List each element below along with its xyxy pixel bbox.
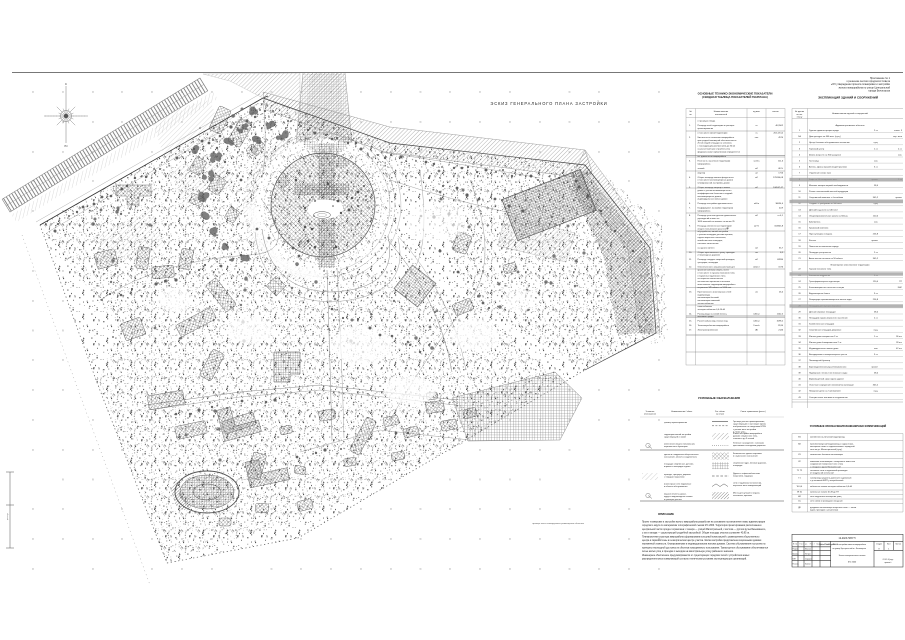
svg-text:существующей и новой: существующей и новой — [664, 436, 686, 439]
svg-text:га 4,1: га 4,1 — [778, 215, 784, 217]
svg-text:Общая площадь жилого фонда все: Общая площадь жилого фонда всего — [698, 176, 735, 179]
svg-text:Ю: Ю — [64, 144, 67, 148]
svg-text:Фонтан: Фонтан — [809, 239, 816, 242]
svg-text:коэффициентов балконов и лоджи: коэффициентов балконов и лоджий — [698, 192, 734, 195]
svg-text:кВт: кВт — [755, 330, 758, 332]
svg-text:Козлов: Козлов — [805, 564, 811, 566]
svg-text:М 1:2000: М 1:2000 — [848, 562, 857, 564]
svg-text:гостевых автостоянок: гостевых автостоянок — [698, 243, 719, 245]
svg-text:48 %: 48 % — [778, 168, 783, 170]
svg-text:25 м2 общей площади на человек: 25 м2 общей площади на человека — [698, 142, 733, 145]
svg-text:111,6: 111,6 — [778, 160, 784, 162]
svg-text:граница зоны планируемого разм: граница зоны планируемого размещения объ… — [532, 523, 585, 525]
svg-text:сущ.: сущ. — [874, 330, 879, 332]
svg-text:проект: проект — [896, 197, 903, 199]
svg-text:газоснабжения: газоснабжения — [698, 306, 712, 308]
svg-text:Административные объекты: Административные объекты — [836, 124, 865, 127]
svg-text:3 эт.: 3 эт. — [874, 167, 878, 169]
svg-text:индивидуальных жилых домов: индивидуальных жилых домов — [698, 199, 729, 201]
svg-text:в том числе: в гаражах боксово: в том числе: в гаражах боксового типа — [698, 272, 736, 274]
svg-text:Н.контр.: Н.контр. — [793, 564, 800, 566]
svg-text:345,2: 345,2 — [873, 385, 879, 387]
svg-text:Жилые дома блокированные 2 эт.: Жилые дома блокированные 2 эт. — [809, 342, 842, 344]
svg-text:Расчетный расход сточных вод: Расчетный расход сточных вод — [698, 320, 729, 323]
svg-text:при средней жилищной обеспечен: при средней жилищной обеспеченности — [698, 139, 738, 142]
svg-text:Площадь участков детских дошко: Площадь участков детских дошкольных — [698, 215, 738, 217]
svg-text:1142,5: 1142,5 — [777, 313, 784, 315]
svg-text:показателей: показателей — [715, 113, 728, 116]
svg-text:Листов: Листов — [895, 544, 901, 546]
svg-text:тротуаров, площадок: тротуаров, площадок — [698, 262, 719, 264]
svg-text:федеральными нормативами опред: федеральными нормативами определяется — [698, 150, 740, 153]
svg-text:Школа искусств на 350 учащихся: Школа искусств на 350 учащихся — [809, 154, 841, 156]
svg-text:нов.: нов. — [898, 154, 902, 156]
svg-text:водные объекты, ручьи,: водные объекты, ручьи, — [664, 494, 687, 496]
svg-text:2 эт.: 2 эт. — [874, 318, 878, 320]
svg-text:Велодорожки и лыжероллерная тр: Велодорожки и лыжероллерная трасса — [809, 354, 848, 356]
svg-text:проект: проект — [872, 366, 879, 368]
svg-text:Разраб.: Разраб. — [793, 549, 800, 551]
svg-text:Пожарное депо на 2 автомобиля: Пожарное депо на 2 автомобиля — [809, 391, 841, 393]
svg-text:домах с учетом понижающих конс: домах с учетом понижающих конст. — [698, 190, 733, 192]
svg-text:Общая протяженность улиц, прое: Общая протяженность улиц, проездов — [698, 252, 736, 254]
svg-text:кол-во: кол-во — [772, 111, 779, 113]
svg-text:Спортивный комплекс с бассейно: Спортивный комплекс с бассейном — [809, 196, 844, 199]
svg-text:площадки: площадки — [733, 465, 742, 467]
svg-text:сети по ул. Магистральной (сущ: сети по ул. Магистральной (сущ.) — [810, 448, 843, 451]
svg-text:Детские игровые площадки: Детские игровые площадки — [809, 311, 836, 313]
svg-text:кольцевая схема с подключением: кольцевая схема с подключением к городск… — [810, 445, 855, 448]
svg-text:электроснабжения 0,4-10 кВ: электроснабжения 0,4-10 кВ — [698, 309, 726, 311]
svg-text:площадки спортивные, детские,: площадки спортивные, детские, — [664, 464, 694, 466]
svg-text:озеленение общего пользования,: озеленение общего пользования, — [664, 444, 696, 446]
svg-text:W 0,4: W 0,4 — [797, 486, 803, 488]
svg-text:ОПИСАНИЕ: ОПИСАНИЕ — [658, 512, 674, 516]
svg-text:цветниками и посадками деревье: цветниками и посадками деревьев — [733, 445, 765, 447]
svg-text:проект»: проект» — [885, 562, 892, 564]
svg-text:36094,4: 36094,4 — [775, 203, 783, 205]
svg-text:120,4: 120,4 — [873, 215, 879, 217]
svg-text:№ здания: № здания — [795, 110, 804, 113]
svg-text:Лист: Лист — [887, 544, 891, 546]
svg-text:ливневая канализация с выпуско: ливневая канализация с выпуском в очистн… — [810, 461, 856, 463]
svg-text:Коэффициент застройки территор: Коэффициент застройки территории — [698, 207, 734, 210]
svg-text:м/мест: м/мест — [753, 267, 760, 269]
svg-text:шт: шт — [755, 172, 758, 174]
svg-text:на плане: на плане — [716, 414, 725, 416]
svg-text:ООО «Град-: ООО «Град- — [883, 559, 894, 561]
svg-text:12-2023-ПЗУ.ГП: 12-2023-ПЗУ.ГП — [839, 538, 856, 540]
svg-text:вдоль проездов с решетками: вдоль проездов с решетками — [810, 510, 839, 512]
svg-text:газопровод среднего давления н: газопровод среднего давления надземный — [810, 477, 852, 480]
svg-text:Жилая застройка микрорайона: Жилая застройка микрорайона — [733, 432, 763, 435]
svg-text:НО: НО — [798, 496, 802, 498]
svg-text:ЭСКИЗ ГЕНЕРАЛЬНОГО ПЛАНА ЗАСТР: ЭСКИЗ ГЕНЕРАЛЬНОГО ПЛАНА ЗАСТРОЙКИ — [490, 101, 607, 106]
svg-text:Канализационная насосная станц: Канализационная насосная станция — [809, 287, 844, 289]
svg-text:Гкал/ч: Гкал/ч — [753, 325, 759, 327]
svg-text:в паркингах подземного типа: в паркингах подземного типа — [698, 275, 727, 277]
svg-text:1 эт.: 1 эт. — [874, 148, 878, 150]
svg-text:14.: 14. — [689, 313, 692, 315]
svg-text:Индивидуальные жилые дома: Индивидуальные жилые дома — [809, 348, 839, 350]
svg-text:хозяйственно-питьевой водопров: хозяйственно-питьевой водопровод — [810, 436, 845, 439]
svg-text:163345,8: 163345,8 — [774, 225, 784, 227]
svg-text:345,2: 345,2 — [873, 258, 879, 260]
svg-text:3 эт.: 3 эт. — [874, 293, 878, 295]
svg-text:м2/га: м2/га — [754, 203, 760, 205]
svg-text:сооружения поверхностного сток: сооружения поверхностного стока — [810, 464, 844, 466]
svg-text:сети связи и проводного вещани: сети связи и проводного вещания — [810, 501, 843, 503]
svg-text:и объекты обслуживания: и объекты обслуживания — [664, 486, 687, 488]
svg-text:пруды и водоотводные канавы: пруды и водоотводные канавы — [664, 496, 693, 498]
svg-text:и пешеходных дорожек: и пешеходных дорожек — [698, 255, 721, 257]
svg-text:центральной части города и огр: центральной части города и ограничена: с… — [642, 528, 766, 531]
svg-text:Здание администрации города: Здание администрации города — [809, 130, 840, 132]
svg-text:с юга и запада — существующей: с юга и запада — существующей усадебной … — [642, 532, 750, 535]
svg-text:канализации ливневой: канализации ливневой — [698, 299, 721, 302]
svg-text:постоянного хранения и гостевы: постоянного хранения и гостевых — [698, 281, 731, 283]
svg-text:Общеобразовательная школа на 6: Общеобразовательная школа на 600 уч. — [809, 215, 849, 217]
svg-text:усл. гр.: усл. гр. — [7, 512, 9, 520]
svg-text:с последующим увеличением до 3: с последующим увеличением до 30 м2 — [698, 146, 736, 148]
svg-text:автостоянках территории микрор: автостоянках территории микрорайона — [698, 283, 737, 286]
svg-text:из расчета 345 м/мест на 1000: из расчета 345 м/мест на 1000 чел. — [698, 287, 733, 289]
svg-text:территория жилой застройки: территория жилой застройки — [664, 433, 691, 436]
svg-text:инженерные сети подземные: инженерные сети подземные — [664, 484, 692, 486]
svg-text:Протяженность инженерных сетей: Протяженность инженерных сетей: — [698, 290, 732, 293]
svg-text:хранения автотранспорта, всего: хранения автотранспорта, всего: — [698, 270, 730, 272]
svg-text:м3/сут: м3/сут — [753, 313, 759, 315]
svg-text:с учетом зоны застройки: с учетом зоны застройки — [733, 428, 756, 431]
svg-text:городского округа по материала: городского округа по материалам топограф… — [642, 524, 762, 527]
svg-text:КНС: КНС — [898, 287, 903, 289]
svg-text:Центр бытового обслуживания на: Центр бытового обслуживания населения — [809, 142, 850, 144]
svg-text:3 эт.: 3 эт. — [874, 354, 878, 356]
svg-text:Дом культуры на 400 мест (сущ.: Дом культуры на 400 мест (сущ.) — [809, 136, 841, 138]
svg-text:Станция юных техников и натура: Станция юных техников и натуралистов — [809, 397, 849, 399]
svg-text:населения, причалы: населения, причалы — [733, 495, 753, 497]
svg-text:назначения, объекты соцкультбы: назначения, объекты соцкультбыта — [664, 457, 698, 459]
svg-text:Площадь всей территории в гран: Площадь всей территории в границах — [698, 124, 736, 127]
svg-text:Теплопотребление микрорайона: Теплопотребление микрорайона — [698, 324, 730, 327]
svg-text:12,84: 12,84 — [778, 325, 784, 327]
svg-text:отдыха взрослого населения,: отдыха взрослого населения, — [698, 237, 727, 239]
svg-text:17.: 17. — [689, 330, 692, 332]
svg-text:12.: 12. — [689, 267, 692, 269]
svg-text:Наименование / обозн.: Наименование / обозн. — [671, 411, 693, 413]
svg-text:этажн. 3: этажн. 3 — [894, 130, 903, 132]
svg-text:канализации бытовой: канализации бытовой — [698, 296, 720, 299]
svg-text:проектирования: проектирования — [698, 128, 714, 130]
svg-text:на расчетный срок строительств: на расчетный срок строительства — [698, 148, 731, 151]
svg-text:с установкой ШРП у потребителе: с установкой ШРП у потребителей — [810, 479, 844, 482]
svg-text:с отводом в ручей Безымянный: с отводом в ручей Безымянный — [810, 465, 841, 468]
svg-text:Проект планировки и застройки: Проект планировки и застройки жилого мик… — [819, 543, 867, 546]
svg-text:Иванов: Иванов — [805, 549, 811, 551]
svg-text:Обеспеченность машино-местами: Обеспеченность машино-местами для — [698, 267, 735, 269]
svg-text:2 эт.: 2 эт. — [874, 252, 878, 254]
svg-text:распределительных коммуникаций: распределительных коммуникаций согласно … — [642, 558, 747, 561]
svg-text:Соотв. примечание (расш.): Соотв. примечание (расш.) — [740, 411, 766, 413]
svg-text:СС: СС — [798, 501, 802, 503]
svg-text:125244,08: 125244,08 — [773, 177, 784, 179]
svg-text:Общая площадь квартир в жилых: Общая площадь квартир в жилых — [698, 187, 732, 189]
svg-text:по улице Центральной в г. Бело: по улице Центральной в г. Белогорске — [832, 547, 866, 550]
svg-text:Резервуары противопожарного за: Резервуары противопожарного запаса воды — [809, 299, 852, 301]
svg-text:учреждений и школ на: учреждений и школ на — [698, 217, 721, 220]
svg-text:Площадь центральная: Площадь центральная — [809, 252, 831, 254]
svg-text:УСЛОВНЫЕ ОБОЗНАЧЕНИЯ: УСЛОВНЫЕ ОБОЗНАЧЕНИЯ — [698, 396, 740, 400]
svg-text:42 шт.: 42 шт. — [896, 348, 902, 350]
svg-text:11.: 11. — [689, 259, 692, 261]
svg-text:Наименование зданий и сооружен: Наименование зданий и сооружений — [832, 112, 868, 115]
svg-text:Инженерное обеспечение предусм: Инженерное обеспечение предусматривается… — [642, 554, 750, 557]
svg-text:15.: 15. — [689, 321, 692, 323]
svg-text:Гаражи боксового типа: Гаражи боксового типа — [809, 269, 832, 271]
svg-text:Площадки отдыха взрослого насе: Площадки отдыха взрослого населения — [809, 318, 848, 320]
svg-text:нов.: нов. — [874, 161, 878, 163]
svg-text:хозяйственных площадок,: хозяйственных площадок, — [698, 239, 724, 242]
svg-text:(СВОДНАЯ ТАБЛИЦА ПОКАЗАТЕЛЕЙ Г: (СВОДНАЯ ТАБЛИЦА ПОКАЗАТЕЛЕЙ ГЕНПЛАНА) — [702, 95, 768, 99]
svg-text:сущ.: сущ. — [874, 391, 879, 393]
svg-text:Парк культуры и отдыха: Парк культуры и отдыха — [809, 234, 833, 236]
svg-text:13.: 13. — [689, 291, 692, 293]
svg-text:водопровода: водопровода — [698, 294, 711, 296]
svg-text:W 10: W 10 — [797, 492, 803, 494]
svg-text:теплоснабжения: теплоснабжения — [698, 303, 714, 305]
svg-text:УСЛОВНЫЕ ОБОЗНАЧЕНИЯ ИНЖЕНЕРНЫ: УСЛОВНЫЕ ОБОЗНАЧЕНИЯ ИНЖЕНЕРНЫХ КОММУНИК… — [810, 425, 887, 428]
svg-text:от модульной котельной: от модульной котельной — [810, 472, 834, 475]
svg-text:самотечная бытовая канализация: самотечная бытовая канализация — [810, 454, 843, 456]
svg-text:2 эт.: 2 эт. — [898, 148, 902, 150]
svg-text:микрорайона: микрорайона — [698, 210, 712, 213]
svg-text:квартир: квартир — [698, 172, 706, 174]
svg-text:микрорайона: микрорайона — [698, 162, 712, 165]
svg-text:Дороги с асфальтобетонным: Дороги с асфальтобетонным — [733, 472, 760, 475]
svg-text:28 шт.: 28 шт. — [896, 342, 902, 344]
svg-text:Рынок сельскохозяйственной про: Рынок сельскохозяйственной продукции — [809, 190, 849, 193]
svg-text:ОСНОВНЫЕ ТЕХНИКО-ЭКОНОМИЧЕСКИЕ: ОСНОВНЫЕ ТЕХНИКО-ЭКОНОМИЧЕСКИЕ ПОКАЗАТЕЛ… — [698, 92, 773, 96]
svg-text:на открытых автостоянках: на открытых автостоянках — [698, 278, 724, 280]
svg-text:парковая зона бульваров: парковая зона бульваров — [664, 446, 688, 448]
svg-text:обустройства, жилой застройки: обустройства, жилой застройки — [698, 230, 729, 233]
svg-text:Пешеходный бульвар: Пешеходный бульвар — [809, 359, 831, 362]
svg-text:Отделение связи, банк: Отделение связи, банк — [809, 173, 831, 175]
svg-text:Площадь застройки зданиями все: Площадь застройки зданиями всего — [698, 202, 734, 205]
svg-text:игровые и площадки отдыха: игровые и площадки отдыха — [664, 466, 691, 468]
svg-text:и социального назначения: и социального назначения — [733, 456, 758, 458]
svg-text:кабельные линии электроснабжен: кабельные линии электроснабжения 0,4 кВ — [810, 486, 852, 488]
svg-text:Храмовый комплекс: Храмовый комплекс — [809, 227, 829, 230]
svg-text:проезды, тротуары, дорожки: проезды, тротуары, дорожки — [664, 474, 691, 476]
svg-text:сетью жилых улиц и проездов с: сетью жилых улиц и проездов с выходом на… — [642, 550, 734, 553]
svg-text:Площадь озелененных территорий: Площадь озелененных территорий — [698, 224, 733, 227]
svg-text:202,13 м2: 202,13 м2 — [773, 132, 783, 134]
svg-text:Площадь твердых покрытий проез: Площадь твердых покрытий проездов, — [698, 258, 736, 261]
svg-text:в границах отвода: в границах отвода — [698, 121, 716, 123]
svg-text:здания и сооружения общественн: здания и сооружения общественного — [664, 454, 699, 456]
svg-text:сущ.: сущ. — [874, 142, 879, 144]
svg-text:пп: пп — [689, 114, 691, 116]
svg-text:города Белогорска: города Белогорска — [868, 89, 890, 92]
svg-text:центра и парковой зоны в геоме: центра и парковой зоны в геометрическом … — [642, 539, 762, 542]
svg-text:Инженерное обеспечение террито: Инженерное обеспечение территории — [831, 265, 871, 267]
svg-text:345,2: 345,2 — [873, 197, 879, 199]
svg-text:40,9562: 40,9562 — [775, 125, 783, 127]
svg-text:2 эт.: 2 эт. — [874, 130, 878, 132]
svg-text:Провер.: Провер. — [793, 554, 800, 556]
svg-text:нов.: нов. — [874, 348, 878, 350]
svg-text:Трансформаторная подстанция: Трансформаторная подстанция — [809, 280, 840, 283]
svg-text:охр. зона: охр. зона — [893, 136, 903, 138]
svg-text:с учетом площадок детских игро: с учетом площадок детских игровых, — [698, 234, 734, 236]
svg-text:Подпорные стенки и лестничные: Подпорные стенки и лестничные сходы — [809, 372, 848, 374]
svg-text:питьевые нужды: питьевые нужды — [698, 316, 715, 318]
svg-text:плану: плану — [797, 117, 802, 119]
svg-text:чел/га: чел/га — [754, 160, 761, 162]
svg-text:Библиотека: Библиотека — [809, 222, 821, 224]
svg-text:ед.изм.: ед.изм. — [753, 111, 760, 113]
svg-text:Стадион с трибунами на 500 мес: Стадион с трибунами на 500 мест — [809, 203, 842, 205]
svg-text:охранные зоны коммуникаций: охранные зоны коммуникаций — [733, 484, 761, 487]
svg-text:Берегоукрепление ручья Безымян: Берегоукрепление ручья Безымянного — [809, 366, 847, 368]
svg-text:Планировочная структура микрор: Планировочная структура микрорайона сфор… — [642, 535, 760, 538]
svg-text:Шумозащитный экран вдоль дорог: Шумозащитный экран вдоль дороги — [809, 378, 845, 381]
svg-text:обозначение: обозначение — [644, 414, 657, 416]
svg-text:120,4: 120,4 — [873, 281, 879, 283]
svg-text:в границах участка: в границах участка — [664, 499, 683, 501]
svg-text:16.: 16. — [689, 325, 692, 327]
svg-text:Т1 Т2: Т1 Т2 — [797, 470, 803, 472]
svg-text:1 эт.: 1 эт. — [874, 336, 878, 338]
svg-text:Магазин товаров первой необход: Магазин товаров первой необходимости — [809, 184, 849, 187]
svg-text:м3/сут: м3/сут — [753, 321, 759, 323]
svg-text:Торговый центр: Торговый центр — [809, 147, 825, 150]
svg-text:пл. домах всего микрорайона: пл. домах всего микрорайона — [698, 155, 727, 158]
svg-text:сущ.: сущ. — [874, 203, 879, 205]
svg-text:Плотность населения территории: Плотность населения территории — [698, 160, 732, 162]
svg-text:Автостоянка гостевая на 50 м/м: Автостоянка гостевая на 50 м/мест — [809, 257, 843, 260]
svg-text:Эскиз генерального плана: Эскиз генерального плана — [839, 555, 867, 557]
svg-text:Петров: Петров — [805, 554, 811, 556]
svg-text:кабельные линии 10 кВ до ТП: кабельные линии 10 кВ до ТП — [810, 492, 839, 494]
svg-text:ЭКСПЛИКАЦИЯ ЗДАНИЙ И СООРУЖЕНИ: ЭКСПЛИКАЦИЯ ЗДАНИЙ И СООРУЖЕНИЙ — [818, 96, 878, 100]
svg-text:этажей: этажей — [698, 167, 706, 170]
svg-text:Аптека, офисы врачей общей пра: Аптека, офисы врачей общей практики — [809, 166, 848, 169]
svg-text:Памятник основателям города: Памятник основателям города — [809, 246, 839, 248]
svg-text:принципу пешеходной доступност: принципу пешеходной доступности объектов… — [642, 546, 769, 549]
svg-text:Проект планировки и застройки: Проект планировки и застройки жилого мик… — [642, 521, 766, 524]
svg-text:граница проектирования: граница проектирования — [664, 422, 687, 424]
svg-text:10.: 10. — [689, 252, 692, 254]
svg-text:м2 %: м2 % — [754, 225, 759, 227]
svg-text:1000 жителей составляет не мен: 1000 жителей составляет не менее 35 — [698, 220, 736, 223]
svg-text:1: 1 — [888, 548, 889, 550]
svg-text:Спортивные площадки дворовые: Спортивные площадки дворовые — [809, 330, 842, 332]
svg-text:проект: проект — [872, 240, 879, 242]
svg-text:покрытием, бордюры: покрытием, бордюры — [733, 476, 753, 478]
svg-text:в том числе многоквартирных до: в том числе многоквартирных домов — [698, 180, 734, 182]
svg-text:тепловые сети в подземной прок: тепловые сети в подземной прокладке — [810, 469, 848, 472]
svg-text:переменной этажности, блокиров: переменной этажности, блокированными и и… — [642, 543, 766, 546]
svg-text:сети наружного освещения улиц: сети наружного освещения улиц — [810, 496, 842, 498]
svg-text:Детский сад-ясли на 140 мест: Детский сад-ясли на 140 мест — [809, 208, 838, 211]
svg-text:противопожарный водопровод с г: противопожарный водопровод с гидрантами, — [810, 443, 854, 446]
svg-text:нов.: нов. — [874, 222, 878, 224]
svg-text:256,8: 256,8 — [873, 234, 879, 236]
svg-text:1098,2: 1098,2 — [777, 321, 784, 323]
svg-text:36 шт.: 36 шт. — [896, 336, 902, 338]
svg-text:дождевая канализация открытого: дождевая канализация открытого типа — ло… — [810, 507, 857, 509]
svg-text:Гостиница: Гостиница — [809, 161, 820, 163]
svg-text:Стадия: Стадия — [876, 544, 882, 546]
svg-text:Сидоров: Сидоров — [805, 559, 812, 561]
svg-text:блокированной застройки, домов: блокированной застройки, домов — [698, 182, 731, 185]
svg-text:256,8: 256,8 — [873, 299, 879, 301]
svg-text:Численность населения микрорай: Численность населения микрорайона — [698, 136, 735, 139]
svg-text:этажность до 3 этажей: этажность до 3 этажей — [733, 437, 754, 440]
svg-text:Наименование: Наименование — [714, 111, 729, 113]
svg-text:Очистные сооружения ливневой к: Очистные сооружения ливневой канализации — [809, 384, 854, 387]
svg-text:с твердым покрытием: с твердым покрытием — [664, 477, 685, 479]
svg-text:в том числе жилой территории: в том числе жилой территории — [698, 131, 729, 134]
svg-text:Электропотребление: Электропотребление — [698, 330, 719, 332]
svg-text:106547,47: 106547,47 — [773, 187, 784, 189]
svg-text:многоквартирных домов,: многоквартирных домов, — [698, 196, 722, 198]
svg-text:Жилые дома секционные 3 эт.: Жилые дома секционные 3 эт. — [809, 336, 839, 338]
svg-text:62830: 62830 — [777, 259, 784, 261]
svg-text:Хозяйственные площадки: Хозяйственные площадки — [809, 323, 835, 326]
svg-text:на одного жителя: на одного жителя — [698, 247, 715, 249]
svg-text:Водонапорная башня: Водонапорная башня — [809, 293, 830, 295]
svg-text:Расход воды на хозяйственно-: Расход воды на хозяйственно- — [698, 312, 728, 315]
